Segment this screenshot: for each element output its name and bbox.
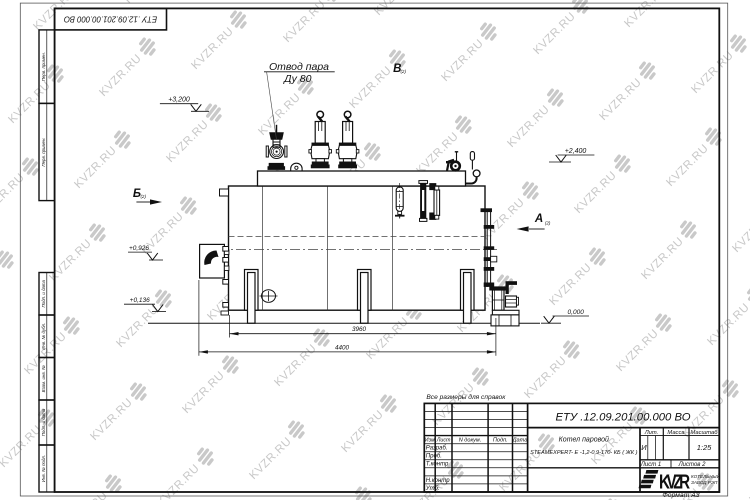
svg-text:Перв. примен.: Перв. примен. [41,52,46,81]
svg-text:Подп.: Подп. [493,438,508,444]
svg-text:ЗАВОД РЭП: ЗАВОД РЭП [691,480,718,485]
svg-text:ЕТУ .12.09.201.00.000 ВО: ЕТУ .12.09.201.00.000 ВО [555,412,690,424]
svg-text:Лит.: Лит. [644,430,659,436]
svg-text:ЕТУ .12.09.201.00.000 ВО: ЕТУ .12.09.201.00.000 ВО [64,14,157,23]
svg-text:Лист 1: Лист 1 [640,462,661,468]
svg-text:KVZR: KVZR [659,470,690,493]
svg-text:Утб.: Утб. [425,486,440,492]
svg-text:Разраб.: Разраб. [426,446,448,452]
svg-text:Подп. и дата: Подп. и дата [41,408,46,436]
svg-text:N докум.: N докум. [459,438,482,444]
svg-text:Масштаб: Масштаб [690,430,718,436]
svg-text:1:25: 1:25 [697,443,712,452]
svg-text:+2,400: +2,400 [565,148,587,155]
svg-text:И: И [641,443,647,452]
svg-text:STEAMEXPERT- Е -1,2-0,9-170- К: STEAMEXPERT- Е -1,2-0,9-170- КБ ( ЖК ) [530,450,638,456]
svg-text:А: А [534,213,543,225]
svg-text:Все размеры для справок: Все размеры для справок [426,393,506,401]
svg-text:Перв. примен.: Перв. примен. [41,137,46,166]
svg-text:3960: 3960 [352,326,367,333]
svg-text:Инв. № подл.: Инв. № подл. [41,455,46,482]
svg-text:(2): (2) [400,69,406,74]
svg-text:Взам. инв. №: Взам. инв. № [41,365,46,392]
svg-text:Листов 2: Листов 2 [678,462,707,468]
svg-text:Н.контр: Н.контр [426,478,450,484]
svg-text:+3,200: +3,200 [168,97,190,104]
svg-text:Отвод пара: Отвод пара [269,61,329,73]
svg-text:+0,136: +0,136 [130,297,150,304]
svg-text:Ду 80: Ду 80 [283,73,312,85]
svg-text:(2): (2) [545,221,551,226]
svg-text:Инв. № дубл.: Инв. № дубл. [41,323,46,350]
svg-text:Изм: Изм [425,438,435,444]
svg-text:Формат А3: Формат А3 [662,492,699,499]
svg-text:Дата: Дата [512,438,528,444]
svg-text:Т.контр: Т.контр [426,462,449,468]
svg-text:(2): (2) [140,194,146,199]
svg-text:+0,926: +0,926 [129,245,149,252]
svg-text:КОТЕЛЬНЫЙ: КОТЕЛЬНЫЙ [691,472,721,479]
svg-text:Лист: Лист [436,438,451,444]
svg-text:Масса: Масса [667,430,685,436]
svg-text:Подп. и дата: Подп. и дата [41,279,46,307]
svg-text:Котел паровой: Котел паровой [559,436,609,444]
svg-text:4400: 4400 [335,344,350,351]
svg-text:Проб.: Проб. [426,454,442,460]
svg-text:0,000: 0,000 [568,309,585,316]
